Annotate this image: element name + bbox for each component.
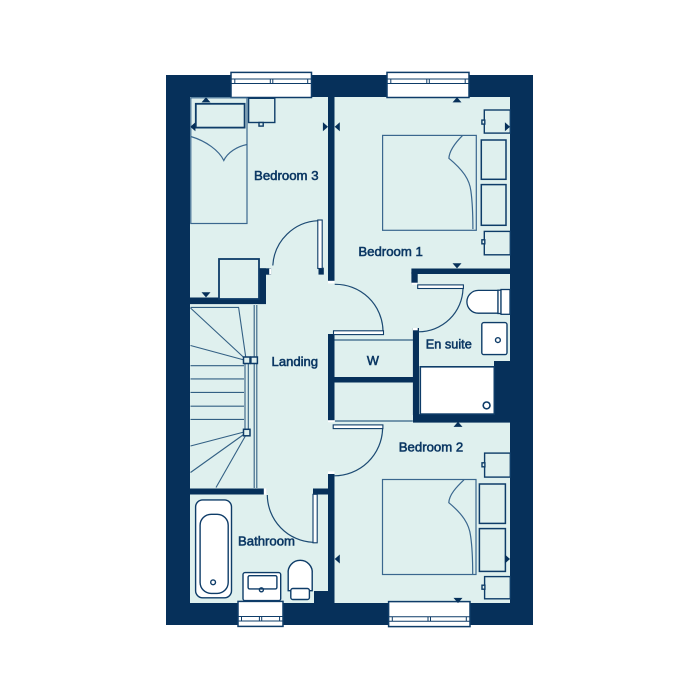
svg-text:Bathroom: Bathroom	[238, 534, 295, 549]
svg-text:W: W	[367, 353, 380, 368]
svg-text:Bedroom 3: Bedroom 3	[254, 168, 319, 183]
svg-text:Landing: Landing	[272, 354, 319, 369]
svg-text:En suite: En suite	[426, 337, 472, 352]
svg-text:Bedroom 1: Bedroom 1	[358, 244, 423, 259]
svg-text:Bedroom 2: Bedroom 2	[399, 439, 464, 454]
